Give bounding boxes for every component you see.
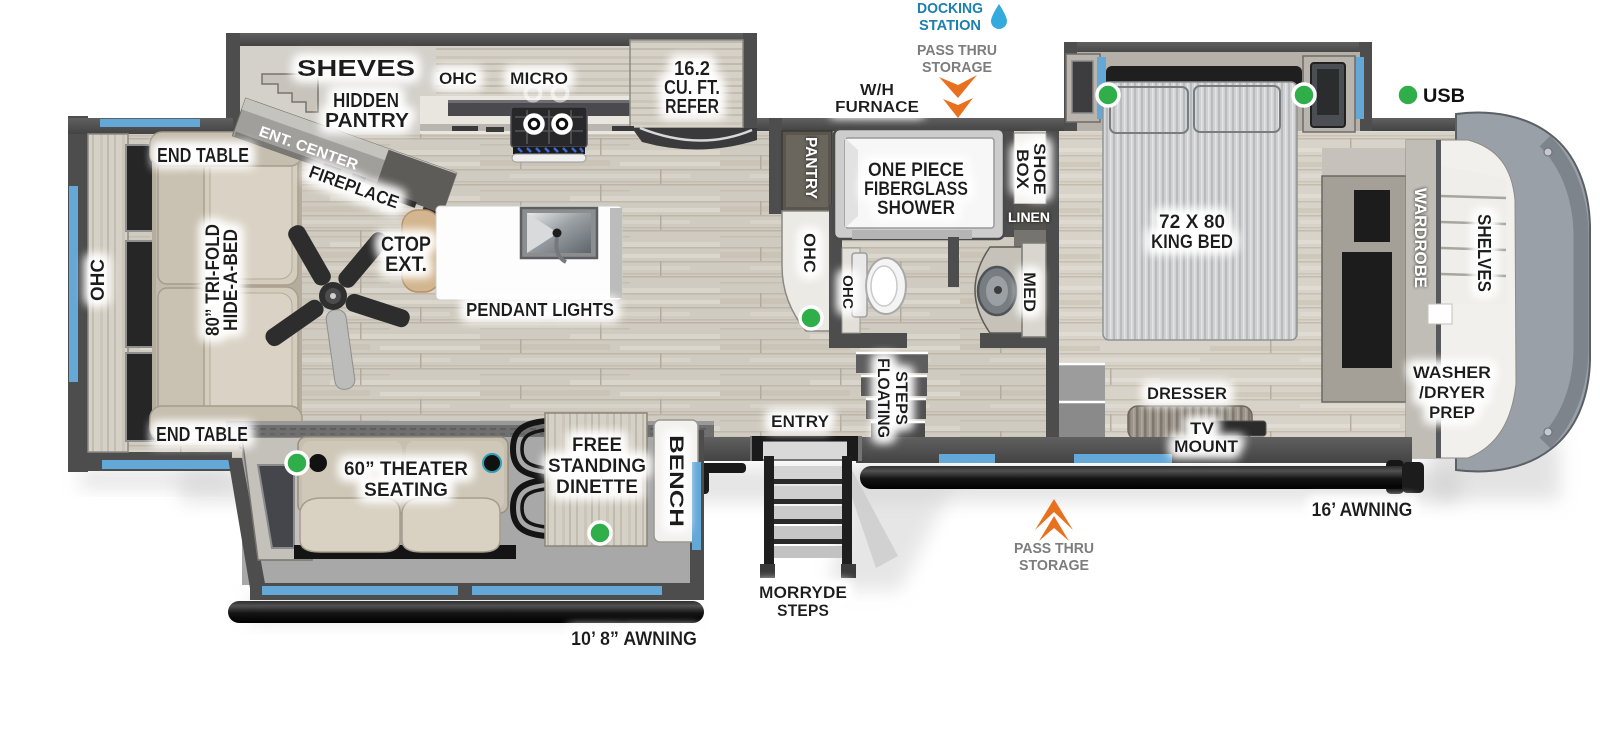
- svg-text:SHEVES: SHEVES: [297, 55, 415, 81]
- svg-text:BENCH: BENCH: [665, 435, 686, 527]
- svg-text:USB: USB: [1423, 86, 1465, 107]
- svg-text:FREE: FREE: [572, 434, 622, 456]
- svg-text:OHC: OHC: [800, 233, 819, 273]
- svg-text:16’ AWNING: 16’ AWNING: [1312, 500, 1413, 521]
- svg-text:FURNACE: FURNACE: [835, 99, 919, 116]
- svg-text:END TABLE: END TABLE: [157, 145, 249, 167]
- svg-text:FLOATING: FLOATING: [874, 358, 893, 438]
- svg-text:KING BED: KING BED: [1151, 232, 1233, 253]
- svg-text:MOUNT: MOUNT: [1174, 437, 1239, 456]
- svg-text:DOCKING: DOCKING: [917, 0, 983, 17]
- svg-text:10’ 8” AWNING: 10’ 8” AWNING: [571, 629, 697, 650]
- svg-text:W/H: W/H: [860, 82, 894, 99]
- svg-text:END TABLE: END TABLE: [156, 424, 248, 446]
- svg-text:PREP: PREP: [1429, 403, 1475, 422]
- svg-text:SHOWER: SHOWER: [877, 198, 955, 219]
- svg-text:BOX: BOX: [1013, 149, 1032, 190]
- svg-text:HIDE-A-BED: HIDE-A-BED: [221, 229, 242, 331]
- svg-text:HIDDEN: HIDDEN: [333, 90, 399, 112]
- svg-text:72 X 80: 72 X 80: [1159, 212, 1225, 233]
- svg-text:MED: MED: [1020, 272, 1039, 312]
- svg-text:WARDROBE: WARDROBE: [1411, 188, 1430, 288]
- svg-text:STANDING: STANDING: [548, 455, 646, 477]
- svg-text:MORRYDE: MORRYDE: [759, 583, 847, 602]
- svg-text:PANTRY: PANTRY: [325, 110, 410, 132]
- svg-text:PASS THRU: PASS THRU: [917, 42, 997, 59]
- svg-text:STATION: STATION: [919, 17, 981, 34]
- svg-text:/DRYER: /DRYER: [1419, 383, 1485, 402]
- svg-text:DINETTE: DINETTE: [556, 476, 638, 498]
- svg-text:LINEN: LINEN: [1008, 210, 1050, 225]
- svg-text:REFER: REFER: [665, 96, 719, 118]
- svg-text:PANTRY: PANTRY: [802, 137, 819, 199]
- svg-text:FIBERGLASS: FIBERGLASS: [864, 179, 968, 200]
- svg-text:TV: TV: [1190, 419, 1215, 438]
- svg-text:STORAGE: STORAGE: [1019, 557, 1089, 574]
- svg-text:PENDANT LIGHTS: PENDANT LIGHTS: [466, 300, 614, 320]
- svg-text:EXT.: EXT.: [385, 253, 427, 276]
- svg-text:DRESSER: DRESSER: [1147, 384, 1227, 403]
- svg-text:MICRO: MICRO: [510, 69, 568, 88]
- svg-text:WASHER: WASHER: [1413, 363, 1491, 382]
- svg-text:SHELVES: SHELVES: [1474, 214, 1494, 292]
- svg-text:STORAGE: STORAGE: [922, 59, 992, 76]
- svg-text:OHC: OHC: [88, 259, 109, 301]
- svg-text:OHC: OHC: [839, 275, 856, 309]
- svg-text:SEATING: SEATING: [364, 479, 448, 501]
- svg-text:OHC: OHC: [439, 69, 477, 88]
- svg-text:PASS THRU: PASS THRU: [1014, 540, 1094, 557]
- svg-text:STEPS: STEPS: [892, 371, 911, 425]
- svg-text:ONE PIECE: ONE PIECE: [868, 160, 964, 181]
- svg-text:ENTRY: ENTRY: [771, 412, 830, 431]
- svg-text:STEPS: STEPS: [777, 601, 829, 620]
- svg-text:60” THEATER: 60” THEATER: [344, 458, 468, 480]
